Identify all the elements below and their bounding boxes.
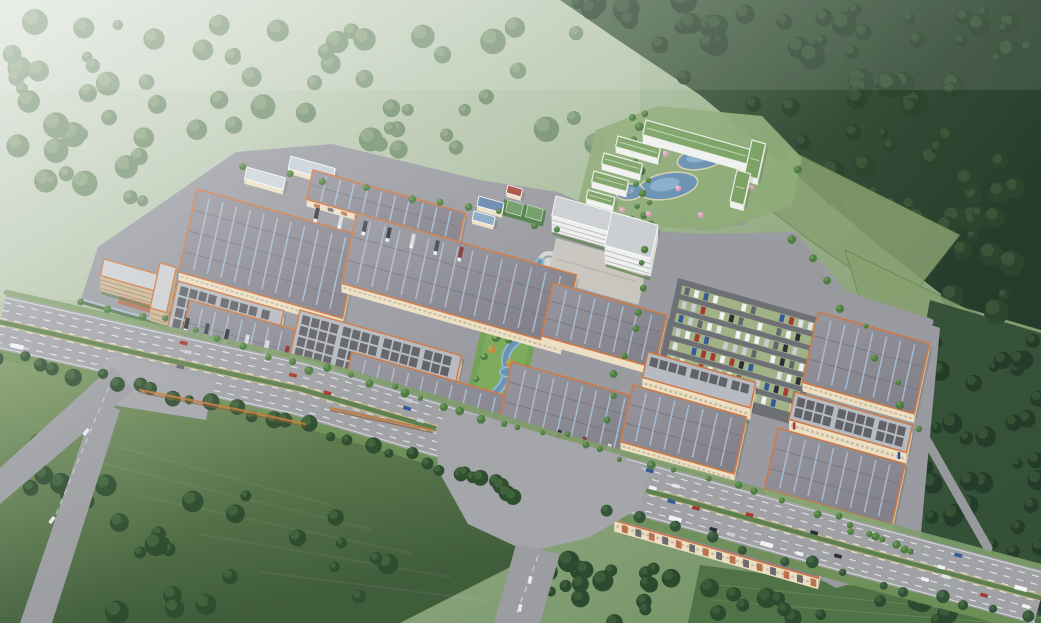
rendering-canvas — [0, 0, 1041, 623]
fog-overlay — [0, 0, 1041, 623]
aerial-site-rendering — [0, 0, 1041, 623]
